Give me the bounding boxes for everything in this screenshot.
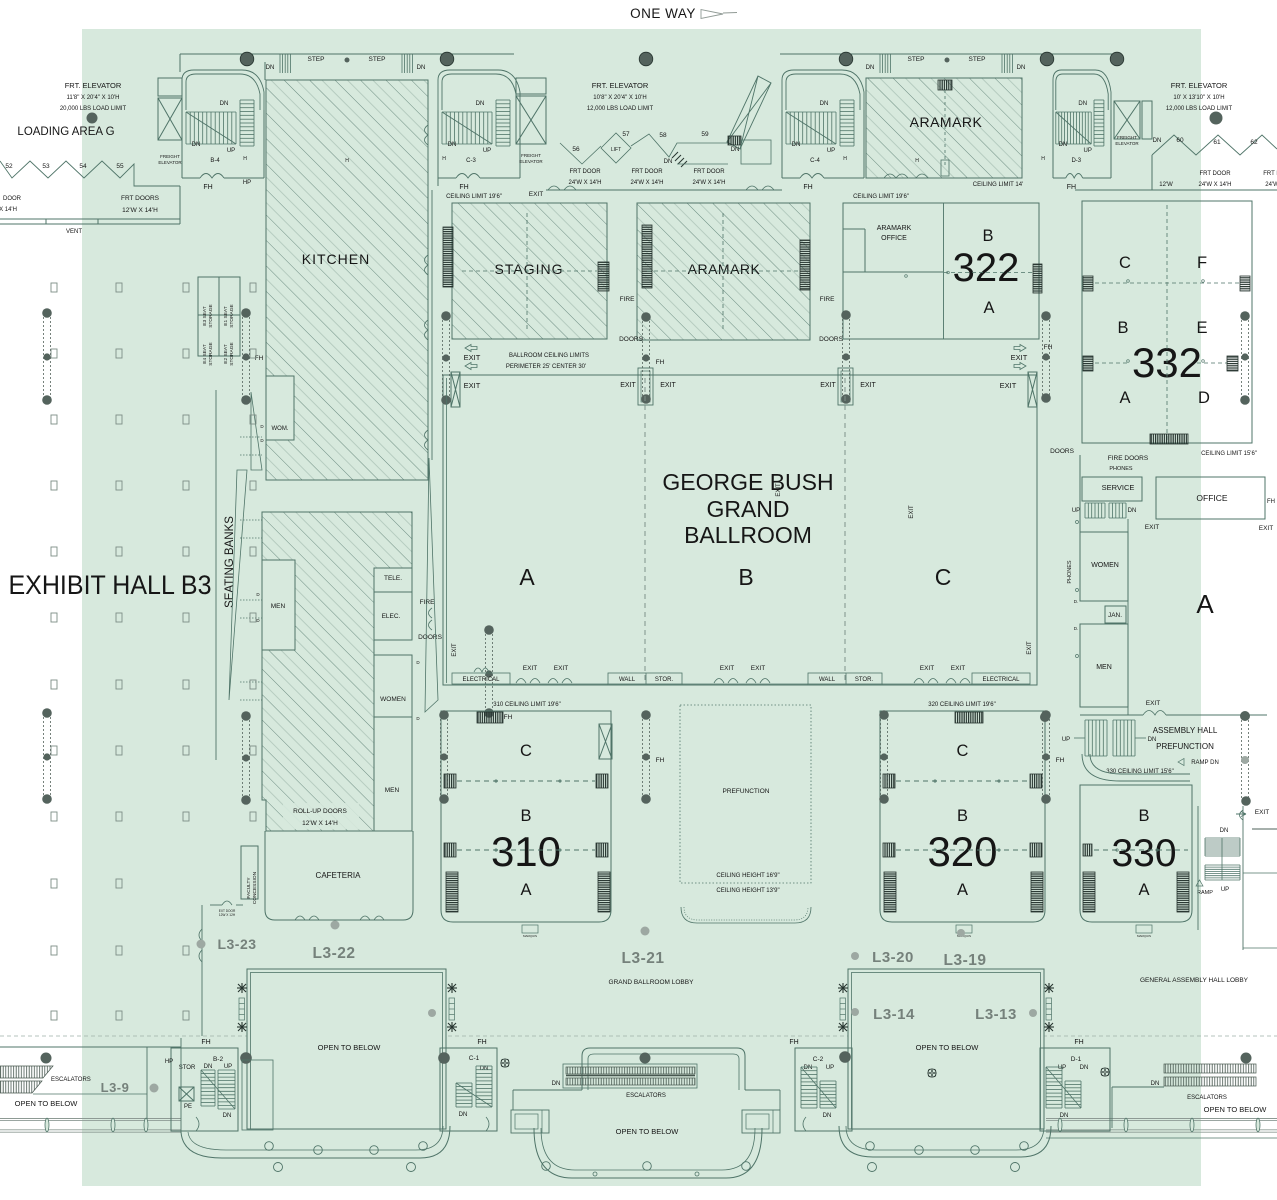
svg-text:GENERAL ASSEMBLY HALL LOBBY: GENERAL ASSEMBLY HALL LOBBY bbox=[1140, 977, 1249, 984]
svg-text:320 CEILING LIMIT 19'6": 320 CEILING LIMIT 19'6" bbox=[928, 702, 996, 708]
svg-text:DOOR: DOOR bbox=[3, 196, 22, 202]
svg-text:ELEVATOR: ELEVATOR bbox=[158, 160, 182, 165]
svg-text:CAFETERIA: CAFETERIA bbox=[316, 871, 362, 880]
svg-text:EXIT: EXIT bbox=[776, 483, 782, 497]
svg-text:A: A bbox=[1196, 589, 1214, 619]
svg-text:DOORS: DOORS bbox=[1050, 448, 1075, 455]
svg-text:B: B bbox=[738, 564, 753, 590]
svg-text:54: 54 bbox=[79, 163, 87, 170]
svg-text:20,000 LBS LOAD LIMIT: 20,000 LBS LOAD LIMIT bbox=[60, 106, 127, 112]
svg-text:DN: DN bbox=[223, 1113, 232, 1119]
svg-text:DN: DN bbox=[417, 65, 426, 71]
svg-text:D.: D. bbox=[1074, 599, 1079, 604]
svg-text:TELE.: TELE. bbox=[384, 575, 402, 582]
svg-text:58: 58 bbox=[659, 132, 667, 139]
svg-text:DN: DN bbox=[823, 1113, 832, 1119]
svg-text:FRT DOOR: FRT DOOR bbox=[569, 169, 601, 175]
svg-text:EXIT: EXIT bbox=[1011, 353, 1028, 362]
svg-text:DN: DN bbox=[192, 142, 201, 148]
svg-text:L3-21: L3-21 bbox=[622, 950, 665, 967]
svg-text:EXIT: EXIT bbox=[1027, 641, 1033, 655]
svg-text:GRAND: GRAND bbox=[706, 496, 789, 522]
svg-text:EXIT: EXIT bbox=[464, 381, 481, 390]
svg-text:EXIT: EXIT bbox=[1146, 700, 1160, 707]
svg-text:EXIT: EXIT bbox=[529, 191, 543, 198]
svg-text:61: 61 bbox=[1213, 139, 1221, 146]
svg-text:OPEN TO BELOW: OPEN TO BELOW bbox=[1204, 1105, 1268, 1114]
svg-text:CEILING LIMIT 19'6": CEILING LIMIT 19'6" bbox=[853, 194, 909, 200]
svg-text:LIFT: LIFT bbox=[611, 147, 621, 153]
svg-text:DN: DN bbox=[792, 142, 801, 148]
svg-text:FIRE: FIRE bbox=[620, 296, 635, 303]
svg-text:PE: PE bbox=[184, 1104, 192, 1110]
svg-text:FACULTY: FACULTY bbox=[246, 877, 252, 899]
svg-text:CEILING HEIGHT 13'9": CEILING HEIGHT 13'9" bbox=[716, 888, 779, 894]
svg-text:C-4: C-4 bbox=[810, 158, 820, 164]
svg-text:UP: UP bbox=[1221, 887, 1229, 893]
svg-text:FH: FH bbox=[1074, 1039, 1083, 1046]
svg-text:310: 310 bbox=[491, 828, 561, 875]
svg-text:L3-23: L3-23 bbox=[217, 936, 256, 952]
svg-text:12'W X 14'H: 12'W X 14'H bbox=[122, 207, 158, 214]
svg-text:E4 SEAT: E4 SEAT bbox=[202, 344, 208, 363]
svg-text:D: D bbox=[1198, 389, 1210, 407]
svg-text:FRT D: FRT D bbox=[1263, 171, 1277, 177]
svg-text:FREIGHT: FREIGHT bbox=[1117, 135, 1137, 140]
svg-text:12,000 LBS LOAD LIMIT: 12,000 LBS LOAD LIMIT bbox=[587, 106, 654, 112]
svg-text:DN: DN bbox=[804, 1065, 813, 1071]
svg-text:UP: UP bbox=[827, 148, 835, 154]
svg-text:CEILING HEIGHT 16'9": CEILING HEIGHT 16'9" bbox=[716, 873, 779, 879]
svg-text:STORAGE: STORAGE bbox=[229, 304, 235, 327]
svg-text:52: 52 bbox=[5, 163, 13, 170]
svg-text:FIRE: FIRE bbox=[820, 296, 835, 303]
svg-text:STEP: STEP bbox=[908, 56, 925, 63]
svg-text:HP: HP bbox=[243, 180, 251, 186]
svg-text:A: A bbox=[983, 299, 994, 317]
svg-text:DN: DN bbox=[204, 1064, 213, 1070]
svg-text:DN: DN bbox=[1017, 65, 1026, 71]
svg-text:OPEN TO BELOW: OPEN TO BELOW bbox=[616, 1127, 680, 1136]
svg-text:CONCESSION: CONCESSION bbox=[252, 871, 258, 904]
svg-text:STEP: STEP bbox=[308, 56, 325, 63]
svg-text:EXIT: EXIT bbox=[523, 665, 537, 672]
svg-text:EXHIBIT HALL B3: EXHIBIT HALL B3 bbox=[9, 570, 212, 600]
svg-text:PERIMETER 25' CENTER 30': PERIMETER 25' CENTER 30' bbox=[506, 364, 586, 370]
svg-text:STEP: STEP bbox=[969, 56, 986, 63]
svg-text:H: H bbox=[442, 156, 446, 162]
svg-text:ELEC.: ELEC. bbox=[382, 613, 401, 620]
svg-text:FRT DOORS: FRT DOORS bbox=[121, 195, 160, 202]
svg-text:C-3: C-3 bbox=[466, 158, 476, 164]
svg-text:VENT: VENT bbox=[66, 229, 82, 235]
svg-text:DN: DN bbox=[1151, 1081, 1160, 1087]
svg-text:FRT DOOR: FRT DOOR bbox=[693, 169, 725, 175]
svg-text:CEILING LIMIT 19'6": CEILING LIMIT 19'6" bbox=[446, 194, 502, 200]
svg-text:UP: UP bbox=[826, 1065, 834, 1071]
svg-text:12,000 LBS LOAD LIMIT: 12,000 LBS LOAD LIMIT bbox=[1166, 106, 1233, 112]
svg-text:E3 SEAT: E3 SEAT bbox=[202, 306, 208, 325]
svg-text:C-2: C-2 bbox=[813, 1056, 824, 1063]
svg-text:FRT DOOR: FRT DOOR bbox=[631, 169, 663, 175]
svg-text:ONE WAY: ONE WAY bbox=[630, 6, 696, 21]
svg-text:ELECTRICAL: ELECTRICAL bbox=[982, 677, 1020, 683]
svg-text:FH: FH bbox=[477, 1039, 486, 1046]
svg-text:310 CEILING LIMIT 19'6": 310 CEILING LIMIT 19'6" bbox=[493, 702, 561, 708]
svg-text:FH: FH bbox=[803, 184, 812, 191]
svg-text:DN: DN bbox=[1060, 1113, 1069, 1119]
svg-text:C-1: C-1 bbox=[469, 1055, 480, 1062]
svg-text:FIRE DOORS: FIRE DOORS bbox=[1108, 455, 1149, 462]
svg-text:FH: FH bbox=[789, 1039, 798, 1046]
svg-text:A: A bbox=[519, 564, 535, 590]
svg-text:DN: DN bbox=[480, 1066, 489, 1072]
svg-text:STORAGE: STORAGE bbox=[208, 304, 214, 327]
svg-text:FH: FH bbox=[1267, 499, 1275, 505]
svg-text:L3-22: L3-22 bbox=[313, 945, 356, 962]
svg-text:DN: DN bbox=[1080, 1065, 1089, 1071]
svg-text:DN: DN bbox=[476, 101, 485, 107]
svg-text:E1 SEAT: E1 SEAT bbox=[223, 306, 229, 325]
svg-text:DN: DN bbox=[1148, 737, 1157, 743]
svg-text:FH: FH bbox=[1067, 184, 1076, 191]
svg-text:D.: D. bbox=[1074, 626, 1079, 631]
svg-text:PREFUNCTION: PREFUNCTION bbox=[723, 788, 770, 795]
svg-text:PREFUNCTION: PREFUNCTION bbox=[1156, 742, 1214, 751]
svg-text:DN: DN bbox=[1078, 101, 1087, 107]
svg-text:H: H bbox=[345, 158, 349, 164]
svg-text:ESCALATORS: ESCALATORS bbox=[1187, 1095, 1227, 1101]
svg-text:B: B bbox=[1117, 319, 1128, 337]
svg-text:MEN: MEN bbox=[385, 787, 400, 794]
svg-text:PHONES: PHONES bbox=[1109, 466, 1133, 472]
svg-text:D-3: D-3 bbox=[1071, 158, 1081, 164]
svg-text:A: A bbox=[520, 881, 531, 899]
svg-text:DOORS: DOORS bbox=[418, 634, 443, 641]
svg-text:UP: UP bbox=[1072, 508, 1080, 514]
svg-text:FH: FH bbox=[203, 184, 212, 191]
svg-text:24'W X 14'H: 24'W X 14'H bbox=[631, 180, 664, 186]
svg-text:DN: DN bbox=[266, 65, 275, 71]
svg-text:322: 322 bbox=[953, 246, 1020, 290]
svg-text:DOORS: DOORS bbox=[819, 336, 844, 343]
svg-text:BALLROOM CEILING LIMITS: BALLROOM CEILING LIMITS bbox=[509, 353, 589, 359]
svg-text:EXIT: EXIT bbox=[554, 665, 568, 672]
svg-text:L3-13: L3-13 bbox=[975, 1006, 1017, 1023]
svg-text:EXIT: EXIT bbox=[860, 382, 876, 389]
svg-text:B: B bbox=[982, 227, 993, 245]
svg-text:ELECTRICAL: ELECTRICAL bbox=[462, 677, 500, 683]
svg-text:B-2: B-2 bbox=[213, 1056, 224, 1063]
svg-text:UP: UP bbox=[227, 148, 235, 154]
svg-text:330: 330 bbox=[1111, 832, 1176, 875]
svg-text:B: B bbox=[520, 807, 531, 825]
svg-text:FH: FH bbox=[504, 714, 513, 721]
svg-text:L3-14: L3-14 bbox=[873, 1006, 915, 1023]
svg-text:F: F bbox=[1197, 254, 1207, 272]
svg-text:OPEN TO BELOW: OPEN TO BELOW bbox=[916, 1043, 980, 1052]
svg-text:B-4: B-4 bbox=[210, 158, 220, 164]
svg-text:FIRE: FIRE bbox=[420, 599, 435, 606]
svg-text:H: H bbox=[1041, 156, 1045, 162]
svg-text:EXIT: EXIT bbox=[1145, 524, 1159, 531]
svg-text:12'W X 14'H: 12'W X 14'H bbox=[302, 820, 338, 827]
svg-text:24'W X 14'H: 24'W X 14'H bbox=[569, 180, 602, 186]
svg-text:A: A bbox=[957, 881, 968, 899]
svg-text:59: 59 bbox=[701, 131, 709, 138]
svg-text:H: H bbox=[843, 156, 847, 162]
svg-text:FRT. ELEVATOR: FRT. ELEVATOR bbox=[592, 81, 649, 90]
svg-text:MEN: MEN bbox=[271, 603, 286, 610]
svg-text:WALL: WALL bbox=[619, 677, 636, 683]
svg-text:FREIGHT: FREIGHT bbox=[521, 153, 541, 158]
svg-text:WOM.: WOM. bbox=[272, 426, 289, 432]
svg-text:DN: DN bbox=[1128, 508, 1137, 514]
svg-text:FRT. ELEVATOR: FRT. ELEVATOR bbox=[65, 81, 122, 90]
svg-text:B: B bbox=[957, 807, 968, 825]
svg-text:DN: DN bbox=[1153, 138, 1162, 144]
svg-text:FRT DOOR: FRT DOOR bbox=[1199, 171, 1231, 177]
svg-text:EXIT: EXIT bbox=[1259, 525, 1273, 532]
svg-text:LOADING AREA G: LOADING AREA G bbox=[17, 126, 114, 138]
svg-text:EXIT: EXIT bbox=[1000, 381, 1017, 390]
svg-text:OFFICE: OFFICE bbox=[881, 235, 907, 242]
svg-text:A: A bbox=[1119, 389, 1130, 407]
svg-text:ARAMARK: ARAMARK bbox=[688, 261, 761, 277]
svg-text:ESCALATORS: ESCALATORS bbox=[51, 1077, 91, 1083]
svg-text:10'8" X 20'4" X 10'H: 10'8" X 20'4" X 10'H bbox=[593, 95, 646, 101]
svg-text:FH: FH bbox=[1056, 757, 1065, 764]
svg-text:X 14'H: X 14'H bbox=[0, 207, 17, 213]
svg-text:EXIT: EXIT bbox=[620, 382, 636, 389]
svg-text:OPEN TO BELOW: OPEN TO BELOW bbox=[15, 1099, 79, 1108]
svg-text:JAN.: JAN. bbox=[1108, 612, 1122, 619]
svg-text:BALLROOM: BALLROOM bbox=[684, 522, 812, 548]
svg-text:56: 56 bbox=[572, 146, 580, 153]
svg-text:55: 55 bbox=[116, 163, 124, 170]
svg-text:DN: DN bbox=[1059, 142, 1068, 148]
svg-text:WALL: WALL bbox=[819, 677, 836, 683]
svg-text:DN: DN bbox=[459, 1112, 468, 1118]
svg-text:FH: FH bbox=[459, 184, 468, 191]
svg-text:E: E bbox=[1196, 319, 1207, 337]
svg-text:53: 53 bbox=[42, 163, 50, 170]
svg-text:FH: FH bbox=[656, 757, 665, 764]
svg-text:EXIT: EXIT bbox=[920, 665, 934, 672]
svg-text:DN: DN bbox=[664, 159, 673, 165]
svg-text:60: 60 bbox=[1176, 137, 1184, 144]
svg-text:KITCHEN: KITCHEN bbox=[302, 251, 370, 267]
svg-text:MARQUIS: MARQUIS bbox=[1137, 934, 1151, 938]
svg-text:EXIT: EXIT bbox=[1255, 809, 1269, 816]
svg-text:MARQUIS: MARQUIS bbox=[523, 934, 537, 938]
svg-text:ARAMARK: ARAMARK bbox=[910, 114, 983, 130]
svg-text:C: C bbox=[520, 742, 532, 760]
svg-text:HP: HP bbox=[165, 1059, 173, 1065]
svg-text:PHONES: PHONES bbox=[1067, 560, 1073, 584]
svg-text:B: B bbox=[1138, 807, 1149, 825]
svg-text:EXIT: EXIT bbox=[951, 665, 965, 672]
svg-text:10' X 13'10" X 10'H: 10' X 13'10" X 10'H bbox=[1173, 95, 1224, 101]
svg-text:GRAND BALLROOM LOBBY: GRAND BALLROOM LOBBY bbox=[609, 979, 695, 986]
svg-text:EXIT: EXIT bbox=[751, 665, 765, 672]
svg-text:DN: DN bbox=[731, 147, 740, 153]
svg-text:GEORGE BUSH: GEORGE BUSH bbox=[662, 469, 833, 495]
svg-text:320: 320 bbox=[927, 828, 997, 875]
svg-text:FRT. ELEVATOR: FRT. ELEVATOR bbox=[1171, 81, 1228, 90]
svg-text:L3-19: L3-19 bbox=[944, 952, 987, 969]
svg-text:EXIT: EXIT bbox=[820, 382, 836, 389]
svg-text:WOMEN: WOMEN bbox=[1091, 562, 1119, 569]
svg-text:62: 62 bbox=[1250, 139, 1258, 146]
svg-text:RAMP: RAMP bbox=[1197, 890, 1213, 896]
svg-text:STORAGE: STORAGE bbox=[229, 342, 235, 365]
svg-text:EXIT: EXIT bbox=[464, 353, 481, 362]
svg-text:OPEN TO BELOW: OPEN TO BELOW bbox=[318, 1043, 382, 1052]
svg-text:EXIT: EXIT bbox=[909, 505, 915, 519]
svg-text:L3-9: L3-9 bbox=[101, 1080, 130, 1095]
svg-text:ELEVATOR: ELEVATOR bbox=[519, 159, 543, 164]
svg-text:OFFICE: OFFICE bbox=[1196, 493, 1227, 503]
svg-text:12W X 12H: 12W X 12H bbox=[219, 913, 236, 917]
svg-text:24'W: 24'W bbox=[1265, 182, 1277, 188]
svg-text:12'W: 12'W bbox=[1159, 182, 1173, 188]
svg-text:CEILING LIMIT 14': CEILING LIMIT 14' bbox=[973, 182, 1023, 188]
svg-text:C: C bbox=[957, 742, 969, 760]
svg-text:RAMP DN: RAMP DN bbox=[1191, 760, 1219, 766]
svg-text:A: A bbox=[1138, 881, 1149, 899]
svg-text:L3-20: L3-20 bbox=[872, 949, 914, 966]
svg-text:UP: UP bbox=[224, 1064, 232, 1070]
svg-text:STEP: STEP bbox=[369, 56, 386, 63]
svg-text:DN: DN bbox=[1220, 828, 1229, 834]
svg-text:MEN: MEN bbox=[1096, 664, 1112, 671]
svg-text:STORAGE: STORAGE bbox=[208, 342, 214, 365]
svg-text:FREIGHT: FREIGHT bbox=[160, 154, 180, 159]
svg-text:DOORS: DOORS bbox=[619, 336, 644, 343]
svg-text:UP: UP bbox=[483, 148, 491, 154]
svg-text:SERVICE: SERVICE bbox=[1102, 483, 1135, 492]
svg-text:FH: FH bbox=[1044, 344, 1053, 351]
svg-text:EXIT: EXIT bbox=[660, 382, 676, 389]
svg-text:C: C bbox=[1119, 254, 1131, 272]
svg-text:DN: DN bbox=[820, 101, 829, 107]
svg-text:UP: UP bbox=[1084, 148, 1092, 154]
svg-text:ASSEMBLY HALL: ASSEMBLY HALL bbox=[1153, 726, 1218, 735]
svg-text:11'8" X 20'4" X 10'H: 11'8" X 20'4" X 10'H bbox=[67, 95, 120, 101]
svg-text:ROLL-UP DOORS: ROLL-UP DOORS bbox=[293, 808, 347, 815]
svg-text:FH: FH bbox=[656, 359, 665, 366]
svg-text:24'W X 14'H: 24'W X 14'H bbox=[693, 180, 726, 186]
svg-text:DN: DN bbox=[448, 142, 457, 148]
svg-text:DN: DN bbox=[866, 65, 875, 71]
svg-text:EXIT: EXIT bbox=[452, 643, 458, 657]
svg-text:H: H bbox=[243, 156, 247, 162]
svg-text:WOMEN: WOMEN bbox=[380, 696, 406, 703]
svg-text:ELEVATOR: ELEVATOR bbox=[1115, 141, 1139, 146]
svg-text:UP: UP bbox=[1062, 737, 1070, 743]
svg-text:C: C bbox=[935, 564, 952, 590]
svg-text:57: 57 bbox=[622, 131, 630, 138]
svg-text:24'W X 14'H: 24'W X 14'H bbox=[1199, 182, 1232, 188]
svg-text:CEILING LIMIT 15'6": CEILING LIMIT 15'6" bbox=[1201, 451, 1257, 457]
svg-text:DN: DN bbox=[552, 1081, 561, 1087]
svg-text:STAGING: STAGING bbox=[495, 261, 564, 277]
svg-text:ESCALATORS: ESCALATORS bbox=[626, 1093, 666, 1099]
svg-text:H: H bbox=[915, 158, 919, 164]
svg-text:ARAMARK: ARAMARK bbox=[877, 225, 912, 232]
svg-text:STOR.: STOR. bbox=[855, 677, 874, 683]
svg-text:FH: FH bbox=[201, 1039, 210, 1046]
svg-text:EXIT: EXIT bbox=[720, 665, 734, 672]
svg-text:DN: DN bbox=[220, 101, 229, 107]
svg-text:D-1: D-1 bbox=[1071, 1056, 1082, 1063]
svg-text:E2 SEAT: E2 SEAT bbox=[223, 344, 229, 363]
svg-text:STOR.: STOR. bbox=[655, 677, 674, 683]
